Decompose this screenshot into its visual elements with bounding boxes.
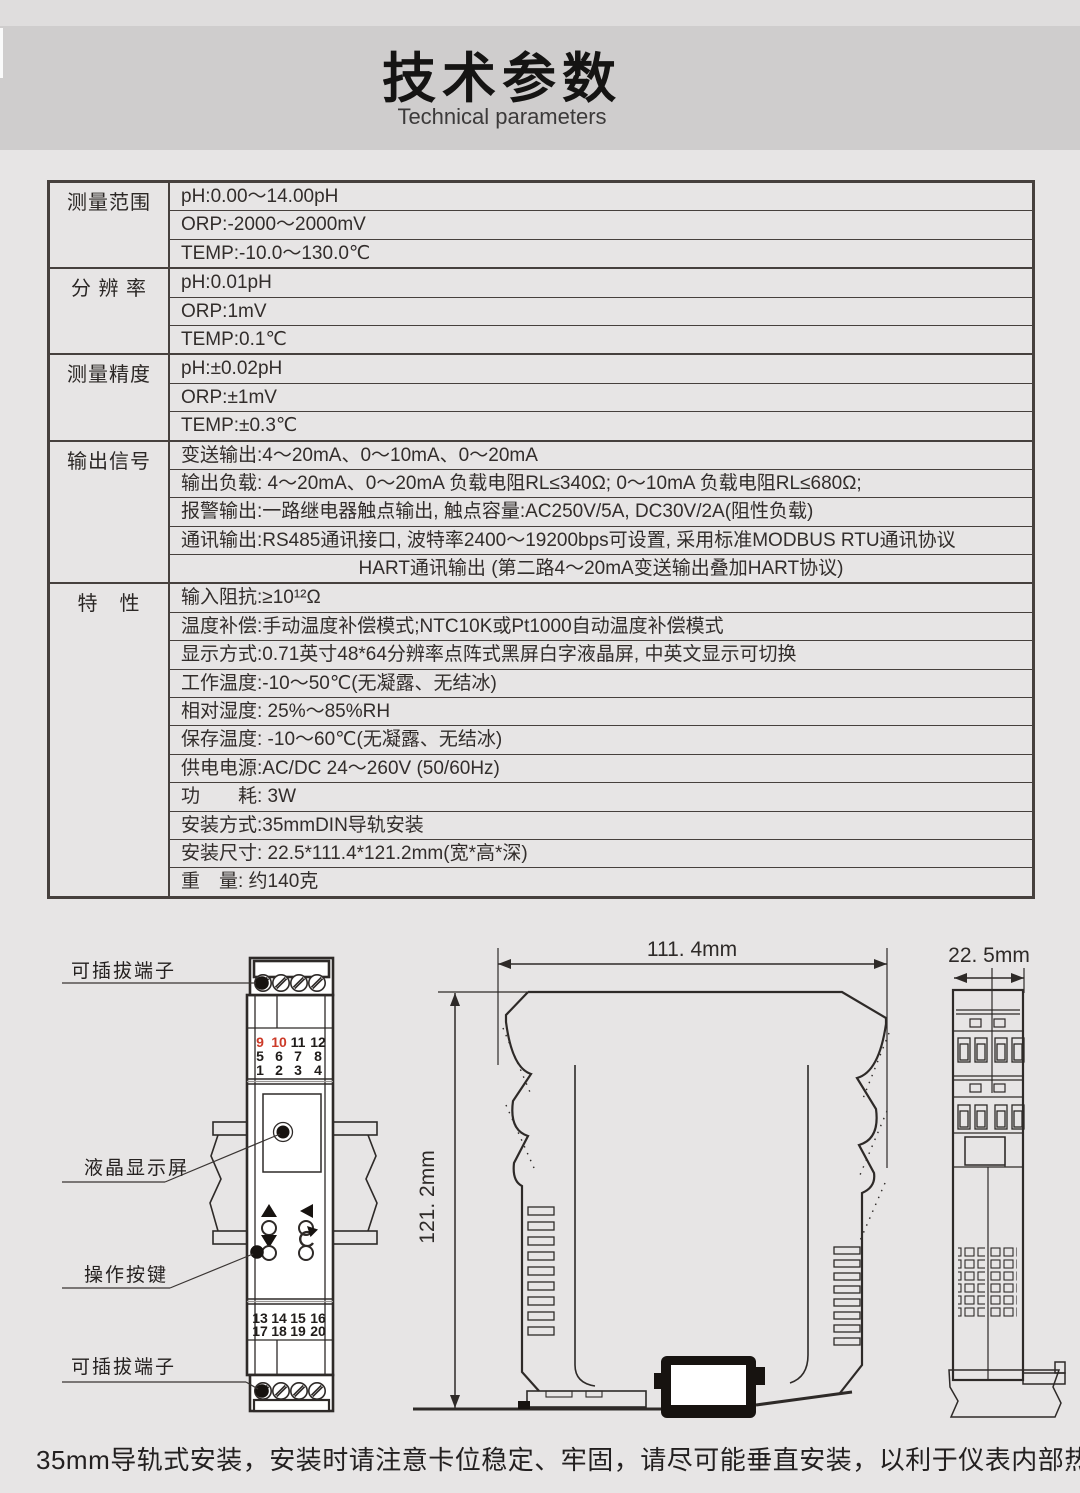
vent-grid-right: [990, 1247, 1017, 1319]
spec-group-label: 输出信号: [50, 442, 170, 583]
spec-row: TEMP:-10.0～130.0℃: [170, 239, 1032, 267]
leader-dot: [255, 1384, 269, 1398]
ground-and-foot: [413, 1391, 852, 1409]
spec-group: 分 辨 率pH:0.01pHORP:1mVTEMP:0.1℃: [50, 267, 1032, 353]
vent-slots-right: [834, 1247, 860, 1345]
terminal-number: 4: [314, 1062, 322, 1078]
end-view-drawing: 22. 5mm: [925, 935, 1080, 1435]
end-rail-and-plate: [949, 1362, 1065, 1417]
terminal-number: 19: [290, 1323, 306, 1339]
spec-group-label: 分 辨 率: [50, 269, 170, 353]
footer-note: 35mm导轨式安装，安装时请注意卡位稳定、牢固，请尽可能垂直安装，以利于仪表内部…: [36, 1440, 1066, 1477]
end-width-dimension-label: 22. 5mm: [948, 944, 1030, 967]
leader-dot: [250, 1245, 264, 1259]
terminal-number: 20: [310, 1323, 326, 1339]
label-keys: 操作按键: [84, 1264, 168, 1286]
spec-row: 输入阻抗:≥10¹²Ω: [170, 584, 1032, 611]
header-strip: [0, 0, 1080, 26]
din-rail-right: [333, 1122, 377, 1244]
terminal-number: 1: [256, 1062, 264, 1078]
bottom-terminal-block: [250, 1375, 333, 1411]
spec-row: 通讯输出:RS485通讯接口, 波特率2400～19200bps可设置, 采用标…: [170, 526, 1032, 554]
spec-row: 安装尺寸: 22.5*111.4*121.2mm(宽*高*深): [170, 839, 1032, 867]
spec-row: 显示方式:0.71英寸48*64分辨率点阵式黑屏白字液晶屏, 中英文显示可切换: [170, 640, 1032, 668]
din-rail-left: [210, 1122, 247, 1244]
spec-row: 报警输出:一路继电器触点输出, 触点容量:AC250V/5A, DC30V/2A…: [170, 497, 1032, 525]
lcd-window: [263, 1094, 321, 1172]
spec-row: 保存温度: -10～60℃(无凝露、无结冰): [170, 725, 1032, 753]
leader-dot: [255, 976, 269, 990]
spec-row: ORP:±1mV: [170, 383, 1032, 411]
terminal-number: 3: [294, 1062, 302, 1078]
spec-row: 输出负载: 4～20mA、0～20mA 负载电阻RL≤340Ω; 0～10mA …: [170, 469, 1032, 497]
terminal-slots-row1: [958, 1038, 1024, 1062]
spec-row: pH:0.01pH: [170, 269, 1032, 296]
terminal-number: 2: [275, 1062, 283, 1078]
width-dimension-label: 111. 4mm: [647, 938, 737, 961]
spec-row: HART通讯输出 (第二路4～20mA变送输出叠加HART协议): [170, 554, 1032, 582]
spec-row: 供电电源:AC/DC 24～260V (50/60Hz): [170, 754, 1032, 782]
spec-row: pH:±0.02pH: [170, 355, 1032, 382]
callout-labels: 可插拔端子 液晶显示屏 操作按键 可插拔端子: [71, 960, 189, 1378]
spec-row: 安装方式:35mmDIN导轨安装: [170, 811, 1032, 839]
spec-row: 工作温度:-10～50℃(无凝露、无结冰): [170, 669, 1032, 697]
spec-group-label: 测量范围: [50, 183, 170, 267]
spec-group-label: 特 性: [50, 584, 170, 895]
spec-row: 功 耗: 3W: [170, 782, 1032, 810]
side-view-drawing: 111. 4mm 121. 2mm: [410, 925, 910, 1425]
label-bottom-terminal: 可插拔端子: [71, 1356, 176, 1378]
end-width-dimension: 22. 5mm: [948, 944, 1030, 1093]
spec-row: ORP:1mV: [170, 297, 1032, 325]
label-lcd: 液晶显示屏: [84, 1157, 189, 1179]
front-view-drawing: 9 10 11 12 5 6 7 8 1 2 3 4 13 14 15 16 1…: [50, 930, 400, 1415]
spec-group: 输出信号变送输出:4～20mA、0～10mA、0～20mA输出负载: 4～20m…: [50, 440, 1032, 583]
terminal-number: 18: [271, 1323, 287, 1339]
spec-table: 测量范围pH:0.00～14.00pHORP:-2000～2000mVTEMP:…: [47, 180, 1035, 899]
terminal-slots-row2: [958, 1105, 1024, 1129]
spec-row: 变送输出:4～20mA、0～10mA、0～20mA: [170, 442, 1032, 469]
vent-grid-left: [958, 1247, 985, 1319]
hatch-dots: [503, 1028, 889, 1243]
vent-slots-left: [528, 1207, 554, 1335]
spec-group: 特 性输入阻抗:≥10¹²Ω温度补偿:手动温度补偿模式;NTC10K或Pt100…: [50, 582, 1032, 895]
terminal-number: 17: [252, 1323, 268, 1339]
spec-row: ORP:-2000～2000mV: [170, 210, 1032, 238]
label-top-terminal: 可插拔端子: [71, 960, 176, 982]
spec-group-label: 测量精度: [50, 355, 170, 439]
spec-row: 重 量: 约140克: [170, 867, 1032, 895]
width-dimension: 111. 4mm: [498, 938, 887, 1168]
spec-row: 温度补偿:手动温度补偿模式;NTC10K或Pt1000自动温度补偿模式: [170, 612, 1032, 640]
spec-row: 相对湿度: 25%～85%RH: [170, 697, 1032, 725]
device-end-outline: [953, 990, 1024, 1380]
page-title: 技术参数: [0, 34, 1004, 113]
rail-clamp: [654, 1356, 765, 1418]
spec-row: TEMP:±0.3℃: [170, 411, 1032, 439]
spec-row: pH:0.00～14.00pH: [170, 183, 1032, 210]
spec-row: TEMP:0.1℃: [170, 325, 1032, 353]
device-side-outline: [506, 992, 886, 1393]
height-dimension-label: 121. 2mm: [416, 1150, 439, 1243]
top-terminal-block: [250, 958, 333, 995]
page-subtitle: Technical parameters: [0, 104, 1004, 130]
spec-group: 测量范围pH:0.00～14.00pHORP:-2000～2000mVTEMP:…: [50, 183, 1032, 267]
leader-dot: [277, 1126, 290, 1139]
spec-group: 测量精度pH:±0.02pHORP:±1mVTEMP:±0.3℃: [50, 353, 1032, 439]
